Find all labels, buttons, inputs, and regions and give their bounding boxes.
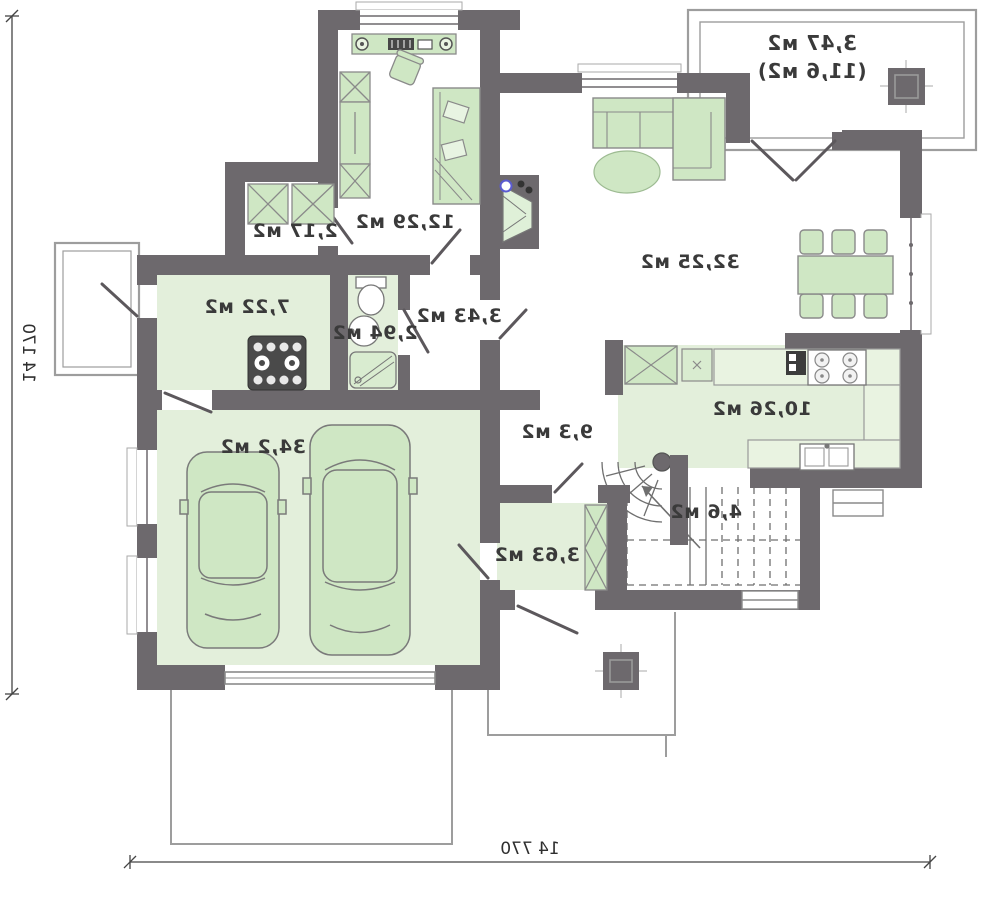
garage-door-icon — [225, 672, 435, 684]
room-label-study: 12,29 м2 — [355, 211, 454, 233]
porch-outline — [488, 612, 675, 757]
terrace-area: 3,47 м2 — [757, 29, 866, 57]
bed-icon — [433, 88, 480, 204]
room-label-kitchen: 10,26 м2 — [712, 398, 811, 420]
column-icon-porch — [595, 644, 647, 698]
room-label-living-room: 32,25 м2 — [640, 251, 739, 273]
dimension-label-horizontal: 14 770 — [500, 839, 559, 859]
floor-plan-page: 3,47 м2 (11,6 м2) 12,29 м2 2,17 м2 32,25… — [0, 0, 1000, 900]
wardrobe-icons — [248, 72, 370, 224]
room-label-bathroom: 2,94 м2 — [332, 322, 418, 344]
dining-table-icon — [798, 230, 893, 318]
floor-plan-svg — [0, 0, 1000, 900]
car-icon-left — [180, 452, 286, 648]
entry-closet-icon — [585, 505, 607, 590]
car-icon-right — [303, 425, 417, 655]
fireplace-icon — [495, 175, 539, 249]
dimension-line-vertical — [5, 10, 19, 700]
boiler-icon — [248, 336, 306, 390]
shower-icon — [350, 352, 396, 388]
room-label-utility: 7,22 м2 — [204, 296, 290, 318]
room-label-wardrobe: 2,17 м2 — [252, 220, 338, 242]
terrace-area-total: (11,6 м2) — [757, 57, 866, 85]
driveway-outline — [171, 690, 452, 845]
toilet-icon — [358, 285, 384, 315]
room-label-entry: 3,63 м2 — [494, 544, 580, 566]
sink-icon — [800, 443, 854, 470]
stove-icon — [808, 350, 866, 385]
room-label-garage: 34,2 м2 — [220, 436, 306, 458]
fridge-icon — [625, 346, 677, 384]
coffee-table-icon — [594, 151, 660, 193]
room-label-corridor: 9,3 м2 — [521, 421, 593, 443]
dimension-label-vertical: 14 170 — [18, 323, 38, 382]
room-label-hall: 3,43 м2 — [416, 305, 502, 327]
cabinet-icon — [682, 349, 712, 381]
side-terrace-outline — [55, 243, 139, 375]
room-label-terrace: 3,47 м2 (11,6 м2) — [757, 29, 866, 85]
oven-icon — [786, 351, 806, 375]
room-label-stairs: 4,6 м2 — [670, 501, 742, 523]
